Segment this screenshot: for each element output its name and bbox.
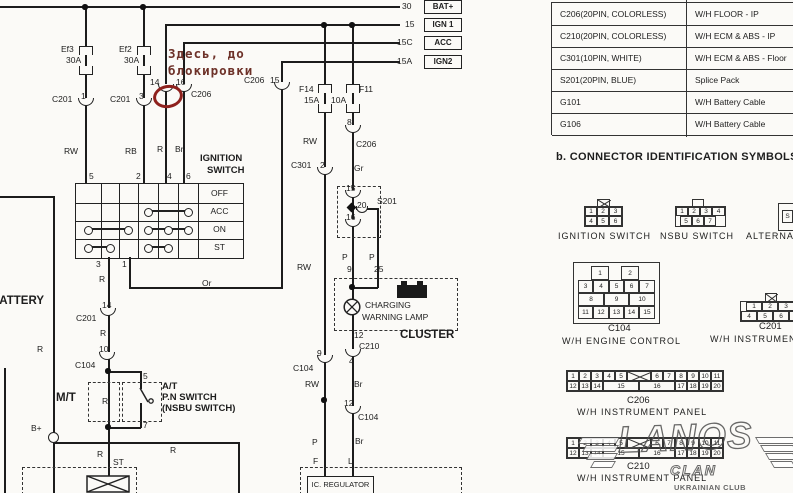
wire-r-run (53, 442, 239, 444)
pin-2-ign: 2 (136, 171, 141, 181)
pin-cell-8: 8 (675, 371, 687, 381)
conn-c201-b: C201 (110, 94, 130, 104)
conn-name-c201: C201 (759, 322, 782, 332)
conn-s201: S201 (377, 196, 397, 206)
conn-c201-mid: C201 (76, 313, 96, 323)
connector-desc-cell: W/H Battery Cable (695, 119, 765, 129)
pin-cell-1: 1 (746, 302, 762, 311)
pin-2-c301: 2 (320, 160, 325, 170)
pin-cell-2: 2 (597, 207, 609, 216)
pin-20-s201: 20 (357, 200, 366, 210)
conn-name-c104: C104 (608, 324, 631, 334)
pin-cell-8: 8 (578, 293, 604, 306)
wire-gr: Gr (354, 163, 363, 173)
pin-9-c104: 9 (317, 348, 322, 358)
pin-cell-5: 5 (609, 280, 624, 293)
pin-cell-5: 5 (757, 311, 773, 321)
conn-name-c210: C210 (627, 462, 650, 472)
ignition-title-1: IGNITION (200, 154, 242, 164)
pin-cell-5: 5 (680, 216, 692, 226)
pin-cell-4: 4 (585, 216, 597, 226)
battnub (401, 281, 407, 285)
pin-5-nsbu: 5 (143, 371, 148, 381)
pin-15-s201: 15 (346, 183, 355, 193)
connector-desc-cell: W/H ECM & ABS - IP (695, 31, 775, 41)
pin-25-cluster: 25 (374, 264, 383, 274)
pin-14-c201: 14 (102, 300, 111, 310)
pin-7-nsbu: 7 (143, 420, 148, 430)
w (129, 257, 131, 288)
ihl (76, 221, 243, 222)
bus-ign1 (165, 24, 400, 26)
wire-rw-1: RW (64, 146, 78, 156)
pin-cell-17: 17 (675, 381, 687, 391)
pin-cell-4: 4 (593, 280, 609, 293)
ignition-switch-connector: 123456 (584, 206, 623, 227)
conn-name-c206: C206 (627, 396, 650, 406)
fuse-f14-rating: 15A (304, 95, 319, 105)
fuse-f11-name: F11 (359, 84, 373, 94)
[object (628, 372, 652, 382)
pin-cell-10: 10 (699, 438, 711, 448)
pin-12-cluster: 12 (354, 330, 363, 340)
terminal-f: F (313, 456, 318, 466)
bus-number-30: 30 (402, 1, 411, 11)
[object (140, 388, 148, 402)
pin-8-c206: 8 (347, 117, 352, 127)
ic-regulator-box: IC. REGULATOR (307, 476, 374, 493)
connector-tab (765, 293, 777, 302)
bus-number-15A: 15A (397, 56, 412, 66)
fuse-ef2 (137, 46, 151, 55)
contact-circle (84, 244, 93, 253)
pin-cell-2: 2 (579, 371, 591, 381)
connector-desc-cell: W/H Battery Cable (695, 97, 765, 107)
pin-cell-3: 3 (609, 207, 622, 216)
contact-circle (124, 226, 133, 235)
connector-table-row: C206(20PIN, COLORLESS)W/H FLOOR - IP (552, 3, 793, 26)
dot (105, 424, 111, 430)
w (238, 442, 240, 493)
contact-circle (164, 226, 173, 235)
bus-ign2 (281, 61, 400, 63)
annotation-line-2: блокировки (168, 63, 253, 78)
pin-cell-10: 10 (699, 371, 711, 381)
conn-label-nsbu-switch: NSBU SWITCH (660, 231, 734, 241)
dot (349, 22, 355, 28)
wire-p-2: P (369, 252, 375, 262)
bus-tag-ign2: IGN2 (424, 55, 462, 69)
contact-circle (144, 244, 153, 253)
connector-desc-cell: Splice Pack (695, 75, 739, 85)
conn-c201-a: C201 (52, 94, 72, 104)
wire-p-3: P (312, 437, 318, 447)
dot (105, 368, 111, 374)
bus-number-15: 15 (405, 19, 414, 29)
conn-label-ignition-switch: IGNITION SWITCH (558, 231, 651, 241)
pin-cell-16: 16 (639, 381, 675, 391)
wire-r-4: R (97, 449, 103, 459)
battnub (417, 281, 423, 285)
pin-cell-14: 14 (624, 306, 639, 319)
pin-4-ign: 4 (167, 171, 172, 181)
wire-rw-4: RW (305, 379, 319, 389)
conn-c104-mid: C104 (293, 363, 313, 373)
wire-rw-3: RW (297, 262, 311, 272)
pin-cell-14: 14 (591, 381, 603, 391)
pin-cell-5: 5 (597, 216, 609, 226)
conn-c206-top: C206 (191, 89, 211, 99)
contact-circle (106, 244, 115, 253)
pin-15-c206: 15 (270, 75, 279, 85)
conn-c210: C210 (359, 341, 379, 351)
w (108, 427, 141, 429)
pin-cell-13: 13 (579, 448, 591, 458)
table-column-divider (686, 0, 687, 137)
fuse-ef3-name: Ef3 (61, 44, 74, 54)
pin-cell-9: 9 (687, 438, 699, 448)
pin-cell-7: 7 (663, 438, 675, 448)
fuse-f14 (318, 84, 332, 93)
pin-cell-10: 10 (629, 293, 655, 306)
pin-5-ign: 5 (89, 171, 94, 181)
dot (321, 22, 327, 28)
pin-4-c210: 4 (349, 356, 354, 366)
cluster-label: CLUSTER (400, 330, 454, 340)
pin-12-c104: 12 (344, 398, 353, 408)
pin-cell-15: 15 (603, 381, 639, 391)
fuse-f11-rating: 10A (331, 95, 346, 105)
pin-cell-4: 4 (741, 311, 757, 321)
connector-id-cell: C210(20PIN, COLORLESS) (560, 31, 666, 41)
conn-c104-bot: C104 (358, 412, 378, 422)
contact-circle (84, 226, 93, 235)
pin-cell-1: 1 (567, 438, 579, 448)
pin-cell-7: 7 (663, 371, 675, 381)
connector-desc-cell: W/H ECM & ABS - Floor (695, 53, 787, 63)
[object (598, 200, 611, 208)
c210-strip-connector: 1234567891011121314151617181920 (566, 437, 724, 459)
connector-desc-cell: W/H FLOOR - IP (695, 9, 759, 19)
wire-st: ST (113, 457, 124, 467)
pin-6-ign: 6 (186, 171, 191, 181)
pin-cell-19: 19 (699, 381, 711, 391)
pin-cell-15: 15 (603, 448, 639, 458)
connector-id-cell: S201(20PIN, BLUE) (560, 75, 636, 85)
ignition-title-2: SWITCH (207, 166, 244, 176)
pin-cell-1: 1 (591, 266, 609, 280)
bus-number-15C: 15C (397, 37, 413, 47)
pin-cell-16: 16 (639, 448, 675, 458)
bus-acc (183, 42, 400, 44)
connector-table-row: G106W/H Battery Cable (552, 113, 793, 136)
pin-cell-S: S (782, 210, 793, 223)
pin-cell-11: 11 (711, 371, 723, 381)
pin-cell-6: 6 (651, 371, 663, 381)
w (4, 368, 6, 493)
pin-cell-12: 12 (593, 306, 609, 319)
contact-circle (164, 244, 173, 253)
pin-cell-1: 1 (567, 371, 579, 381)
starter-motor-symbol (86, 475, 130, 493)
pin-cell-13: 13 (579, 381, 591, 391)
b-plus-terminal (48, 432, 59, 443)
wire-or: Or (202, 278, 211, 288)
c201-connector: 1234567 (740, 301, 793, 322)
pin-cell-11: 11 (578, 306, 593, 319)
pin-cell-4: 4 (712, 207, 725, 216)
conn-label-c206: W/H INSTRUMENT PANEL (577, 407, 707, 417)
pin-cell-2: 2 (762, 302, 778, 311)
pin-cell-3: 3 (778, 302, 793, 311)
pin-cell-6: 6 (651, 438, 663, 448)
fb (137, 66, 151, 75)
w (0, 196, 54, 198)
pin-3-ign-out: 3 (96, 259, 101, 269)
ihl (76, 239, 243, 240)
ignition-position-on: ON (197, 224, 242, 234)
fb (318, 104, 332, 113)
dot (82, 4, 88, 10)
pin-cell-3: 3 (700, 207, 712, 216)
wire-r-2: R (99, 274, 105, 284)
w (108, 371, 141, 373)
connector-id-cell: C206(20PIN, COLORLESS) (560, 9, 666, 19)
pin-cell-13: 13 (609, 306, 624, 319)
connector-table-row: C301(10PIN, WHITE)W/H ECM & ABS - Floor (552, 47, 793, 70)
pin-cell-5: 5 (615, 371, 627, 381)
fb (79, 66, 93, 75)
connector-id-cell: G106 (560, 119, 581, 129)
w (108, 257, 110, 477)
fuse-f14-name: F14 (299, 84, 314, 94)
contact-circle (144, 208, 153, 217)
pin-cell-2: 2 (621, 266, 639, 280)
c104-connector: 123456789101112131415 (573, 262, 660, 324)
pin-cell-11: 11 (711, 438, 723, 448)
pin-16-c206: 16 (176, 77, 185, 87)
ihl (76, 203, 243, 204)
pin-cell-2: 2 (688, 207, 700, 216)
fuse-ef2-rating: 30A (124, 55, 139, 65)
c206-strip-connector: 1234567891011121314151617181920 (566, 370, 724, 392)
pin-cell-3: 3 (578, 280, 593, 293)
wire-r-1: R (157, 144, 163, 154)
keyway-cell (627, 438, 651, 448)
mt-label: M/T (56, 393, 76, 403)
connector-table-row: C210(20PIN, COLORLESS)W/H ECM & ABS - IP (552, 25, 793, 48)
wire-rw-2: RW (303, 136, 317, 146)
battery-cable (53, 196, 55, 433)
pin-cell-19: 19 (699, 448, 711, 458)
fb (346, 104, 360, 113)
pin-cell-9: 9 (687, 371, 699, 381)
bus-tag-acc: ACC (424, 36, 462, 50)
pin-cell-12: 12 (567, 381, 579, 391)
pin-cell-17: 17 (675, 448, 687, 458)
wire-r-3: R (100, 328, 106, 338)
pin-cell-20: 20 (711, 448, 723, 458)
connector-id-cell: C301(10PIN, WHITE) (560, 53, 642, 63)
fuse-f11 (346, 84, 360, 93)
wire-br-3: Br (355, 436, 364, 446)
wire-r-5: R (170, 445, 176, 455)
battery-icon (397, 285, 427, 298)
fuse-ef3-rating: 30A (66, 55, 81, 65)
pin-1-c201: 1 (81, 91, 86, 101)
conn-c206-mid: C206 (356, 139, 376, 149)
pin-cell-7: 7 (789, 311, 793, 321)
connector-id-cell: G101 (560, 97, 581, 107)
alternator-connector: S (778, 203, 793, 231)
ignition-position-st: ST (197, 242, 242, 252)
contact-link (147, 210, 187, 211)
wire-rb: RB (125, 146, 137, 156)
[object (766, 294, 778, 303)
ignition-position-acc: ACC (197, 206, 242, 216)
wire-p-1: P (342, 252, 348, 262)
conn-c104-left: C104 (75, 360, 95, 370)
pin-cell-18: 18 (687, 448, 699, 458)
bus-bat (0, 6, 400, 8)
nsbu-switch-contact (133, 383, 159, 407)
battery-label: BATTERY (0, 296, 44, 306)
connector-tab (597, 199, 610, 207)
pin-cell-2: 2 (579, 438, 591, 448)
pin-cell-6: 6 (773, 311, 789, 321)
splice-pack-s201-box (337, 186, 381, 238)
connector-table-row: S201(20PIN, BLUE)Splice Pack (552, 69, 793, 92)
wire-r-mt: R (102, 396, 108, 406)
pin-cell-4: 4 (603, 438, 615, 448)
pin-10-c104: 10 (99, 344, 108, 354)
bplus-label: B+ (31, 423, 42, 433)
terminal-l: L (348, 456, 353, 466)
charging-warning-lamp-icon (343, 298, 361, 316)
pin-cell-1: 1 (585, 207, 597, 216)
pin-cell-15: 15 (639, 306, 655, 319)
ignition-position-off: OFF (197, 188, 242, 198)
pin-16-s201: 16 (346, 212, 355, 222)
conn-label-c104: W/H ENGINE CONTROL (562, 336, 681, 346)
fuse-ef3 (79, 46, 93, 55)
pin-cell-3: 3 (591, 371, 603, 381)
pin-1-ign-out: 1 (122, 259, 127, 269)
fuse-ef2-name: Ef2 (119, 44, 132, 54)
pin-cell-5: 5 (615, 438, 627, 448)
pin-cell-8: 8 (675, 438, 687, 448)
pin-cell-20: 20 (711, 381, 723, 391)
contact-circle (184, 226, 193, 235)
nsbu-switch-label: (NSBU SWITCH) (162, 404, 235, 414)
connector-tab (692, 199, 704, 207)
conn-c206-15: C206 (244, 75, 264, 85)
bus-tag-bat+: BAT+ (424, 0, 462, 14)
wire-br-1: Br (175, 144, 184, 154)
pin-cell-12: 12 (567, 448, 579, 458)
pin-14-c206: 14 (150, 77, 159, 87)
pin-3-c201: 3 (139, 91, 144, 101)
dot (321, 397, 327, 403)
pin-cell-1: 1 (676, 207, 688, 216)
pn-switch-label: P.N SWITCH (162, 393, 217, 403)
pin-cell-9: 9 (604, 293, 629, 306)
pin-cell-6: 6 (692, 216, 704, 226)
nsbu-switch-connector: 1234567 (675, 206, 726, 227)
pin-cell-4: 4 (603, 371, 615, 381)
bus-tag-ign-1: IGN 1 (424, 18, 462, 32)
keyway-cell (627, 371, 651, 381)
[object (628, 439, 652, 449)
contact-link (87, 228, 127, 229)
pin-cell-7: 7 (639, 280, 655, 293)
conn-label-c201: W/H INSTRUMENT PANEL (710, 334, 793, 344)
conn-c301: C301 (291, 160, 311, 170)
dot (140, 4, 146, 10)
[object (149, 399, 153, 403)
contact-circle (184, 208, 193, 217)
wiring-diagram-page: IC. REGULATOR Здесь, до блокировки 30BAT… (0, 0, 793, 493)
w (281, 61, 283, 288)
contact-circle (144, 226, 153, 235)
charging-label: CHARGING (365, 300, 411, 310)
pin-cell-3: 3 (591, 438, 603, 448)
pin-cell-14: 14 (591, 448, 603, 458)
section-b-heading: b. CONNECTOR IDENTIFICATION SYMBOLS (556, 151, 793, 163)
pin-cell-6: 6 (624, 280, 639, 293)
conn-label-c210: W/H INSTRUMENT PANEL (577, 473, 707, 483)
pin-cell-7: 7 (704, 216, 716, 226)
warning-lamp-label: WARNING LAMP (362, 312, 428, 322)
annotation-line-1: Здесь, до (168, 46, 245, 61)
connector-table-row: G101W/H Battery Cable (552, 91, 793, 114)
pin-cell-6: 6 (609, 216, 622, 226)
connector-table: C206(20PIN, COLORLESS)W/H FLOOR - IPC210… (551, 2, 793, 135)
pin-cell-18: 18 (687, 381, 699, 391)
pin-9-cluster: 9 (347, 264, 352, 274)
conn-label-alternator: ALTERNATOR (746, 231, 793, 241)
at-label: A/T (162, 382, 177, 392)
wire-r-batt: R (37, 344, 43, 354)
wire-br-2: Br (354, 379, 363, 389)
